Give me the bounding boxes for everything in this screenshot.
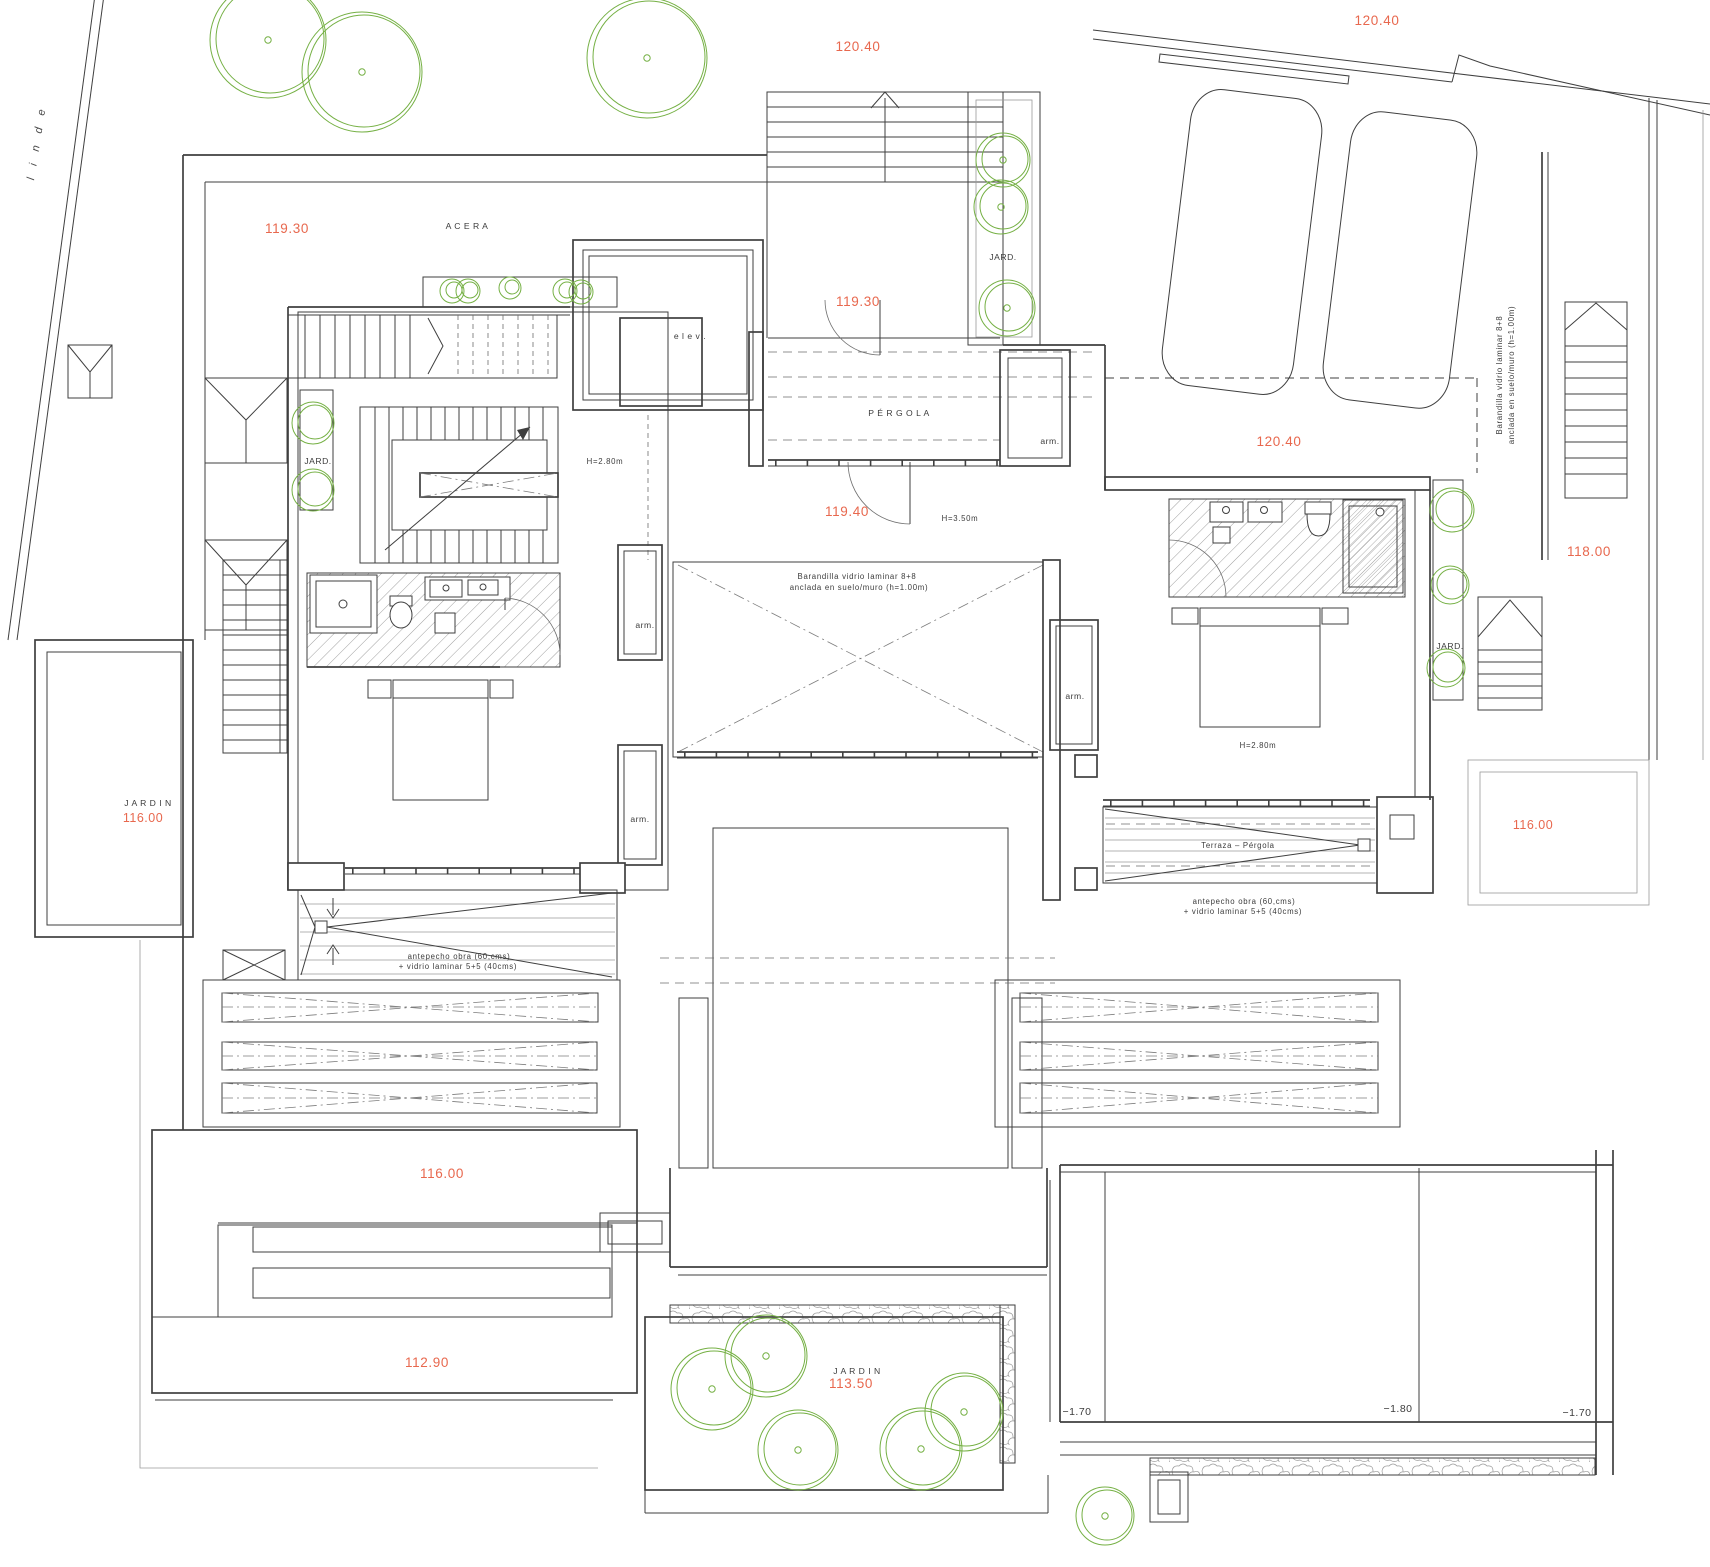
corner-post	[1075, 755, 1097, 777]
slat-pergola-right	[995, 980, 1400, 1127]
right-house-north-wall	[1105, 477, 1430, 490]
jardin-left-level: 116.00	[123, 811, 163, 825]
slat-bar	[1020, 1042, 1378, 1070]
closet-north-right	[1000, 350, 1070, 466]
west-garden	[35, 345, 287, 937]
left-bathroom	[307, 573, 560, 667]
southwest-boundary	[140, 940, 598, 1468]
car-icon	[1319, 108, 1480, 411]
height-bedroom-right: H=2.80m	[1240, 741, 1277, 750]
entry-stairs	[767, 92, 1105, 490]
tree-icon	[210, 0, 326, 98]
linde-line-inner	[17, 0, 104, 640]
mid-steps	[600, 1213, 670, 1252]
tree-icon	[1430, 488, 1474, 532]
height-hall-left: H=2.80m	[587, 457, 624, 466]
stone-border-bottom	[1150, 1458, 1595, 1475]
nightstand	[368, 680, 391, 698]
nightstand	[1322, 608, 1348, 624]
tree-icon	[979, 280, 1035, 336]
street-edge-1	[1093, 30, 1710, 104]
labels-layer: 120.40120.40119.30A C E R A119.30e l e v…	[25, 13, 1611, 1419]
tree-icon	[302, 12, 422, 132]
slat-bar	[1020, 993, 1378, 1022]
jard-label-left: JARD.	[304, 456, 331, 466]
linde-line-outer	[8, 0, 95, 640]
jard-label-top: JARD.	[989, 252, 1016, 262]
corner-post	[288, 863, 344, 890]
stone-border-top	[670, 1305, 1015, 1323]
tree-icon	[440, 279, 464, 303]
slat-bar	[1020, 1083, 1378, 1113]
east-stair-upper	[1542, 152, 1627, 560]
slat-bar	[222, 1083, 597, 1113]
antepecho-left-line2: + vidrio laminar 5+5 (40cms)	[399, 962, 517, 971]
right-bedroom	[1050, 608, 1348, 750]
garden-bed	[645, 1317, 1003, 1490]
jardin-bottom-label: J A R D I N	[833, 1366, 881, 1376]
tree-icon	[292, 469, 334, 511]
car-icon	[1158, 86, 1325, 398]
tree-icon	[587, 0, 707, 118]
left-house-upper-stair	[288, 315, 557, 378]
linde-label: l i n d e	[25, 104, 49, 181]
level-116-00-right: 116.00	[1513, 818, 1553, 832]
corner-post	[1075, 868, 1097, 890]
right-house	[1043, 477, 1433, 900]
level-119-30-acera: 119.30	[265, 221, 309, 236]
east-garden-terrace	[1468, 760, 1649, 905]
tree-icon	[1427, 649, 1465, 687]
closet-label-3: arm.	[1065, 691, 1084, 701]
height-entry: H=3.50m	[942, 514, 979, 523]
jardin-left-label: J A R D I N	[124, 798, 172, 808]
jard-planter-right	[1433, 480, 1463, 700]
tree-icon	[499, 277, 521, 299]
street-edge-3	[1452, 55, 1710, 115]
tree-icon	[456, 279, 480, 303]
tree-icon	[974, 180, 1028, 234]
tree-icon	[1076, 1487, 1134, 1545]
right-corner-block	[1377, 797, 1433, 893]
jardin-bottom-level: 113.50	[829, 1376, 873, 1391]
tree-icon	[758, 1410, 838, 1490]
elevator-label: e l e v .	[674, 331, 706, 341]
floor-plan-page: { "title": "Planta - vivienda pareada", …	[0, 0, 1710, 1567]
antepecho-right-line1: antepecho obra (60,cms)	[1193, 897, 1296, 906]
tree-icon	[880, 1408, 962, 1490]
pool-level-b: −1.80	[1383, 1403, 1412, 1415]
lower-courtyard	[660, 828, 1055, 1168]
slat-bar	[222, 993, 598, 1022]
antepecho-right-line2: + vidrio laminar 5+5 (40cms)	[1184, 907, 1302, 916]
site-plan-svg: 120.40120.40119.30A C E R A119.30e l e v…	[0, 0, 1710, 1567]
site-plan: 120.40120.40119.30A C E R A119.30e l e v…	[0, 0, 1710, 1567]
pergola-strip	[768, 338, 1093, 466]
east-stair-lower	[1478, 597, 1542, 710]
parked-cars	[1158, 86, 1480, 412]
pool-level-c: −1.70	[1562, 1407, 1591, 1419]
planter-step	[253, 1268, 610, 1298]
barandilla-right-line1: Barandilla vidrio laminar 8+8	[1495, 316, 1504, 435]
garage-court	[1105, 86, 1649, 905]
west-garden-inner	[47, 652, 181, 925]
level-116-00-bottom: 116.00	[420, 1166, 464, 1181]
level-118-00: 118.00	[1567, 544, 1611, 559]
right-bathroom	[1169, 499, 1405, 597]
west-garden-stair	[223, 560, 287, 753]
closet-label-2: arm.	[635, 620, 654, 630]
acera-label: A C E R A	[446, 221, 489, 231]
slat-pergola-left	[203, 950, 620, 1127]
right-house-west-wall	[1043, 560, 1060, 900]
jard-label-right: JARD.	[1436, 641, 1463, 651]
terraza-pergola-label: Terraza – Pérgola	[1201, 841, 1274, 850]
level-119-40: 119.40	[825, 504, 869, 519]
planter-step	[253, 1227, 612, 1252]
closet-label-1: arm.	[1040, 436, 1059, 446]
tree-icon	[292, 402, 334, 444]
antepecho-left-line1: antepecho obra (60,cms)	[408, 952, 511, 961]
slope-arrows	[327, 898, 339, 965]
barandilla-right-line2: anclada en suelo/muro (h=1.00m)	[1507, 306, 1516, 445]
level-112-90: 112.90	[405, 1355, 449, 1370]
barandilla-court-line2: anclada en suelo/muro (h=1.00m)	[790, 583, 929, 592]
pergola-label: P É R G O L A	[868, 408, 929, 418]
tree-icon	[725, 1315, 807, 1397]
level-120-40-garage: 120.40	[1257, 434, 1302, 449]
courtyard-planter-left	[679, 998, 708, 1168]
south-garden	[645, 1168, 1048, 1513]
nightstand	[490, 680, 513, 698]
pier-wall	[749, 332, 763, 466]
level-120-40-street: 120.40	[1355, 13, 1400, 28]
sunken-patio	[1050, 1150, 1613, 1522]
west-garden-outer	[35, 640, 193, 937]
tree-icon	[925, 1373, 1003, 1451]
barandilla-court-line1: Barandilla vidrio laminar 8+8	[798, 572, 917, 581]
stair-arrowhead	[517, 427, 530, 440]
patio-steps	[1150, 1472, 1188, 1522]
level-120-40-walkway: 120.40	[836, 39, 881, 54]
nightstand	[1172, 608, 1198, 624]
tree-icon	[671, 1348, 753, 1430]
left-house	[288, 307, 668, 893]
pool-level-a: −1.70	[1062, 1406, 1091, 1418]
closet-label-4: arm.	[630, 814, 649, 824]
corner-post	[580, 863, 625, 893]
plot-boundaries	[8, 0, 1710, 1468]
left-house-interior-stair	[360, 407, 558, 563]
west-roof-elements	[68, 345, 287, 630]
slat-bar	[222, 1042, 597, 1070]
left-bedroom	[368, 680, 513, 800]
level-119-30-entry: 119.30	[836, 294, 880, 309]
